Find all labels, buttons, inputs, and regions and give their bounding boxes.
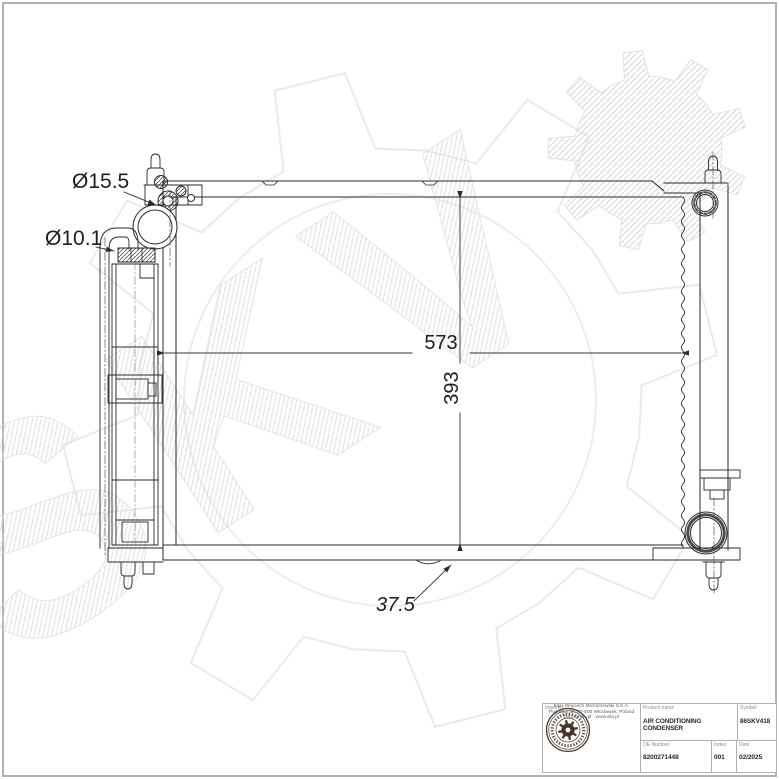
symbol-cell: Symbol 86SKV418 xyxy=(738,704,776,740)
dimension-pipe-diameter: Ø10.1 xyxy=(45,227,102,250)
bracket-clip xyxy=(700,470,740,499)
title-block: Importer E&H Wojciech Michorzewski S.K.A… xyxy=(542,703,777,773)
watermark-text: SKV xyxy=(0,58,633,722)
port-ring xyxy=(133,205,177,249)
condenser-technical-drawing: SKV xyxy=(0,0,779,779)
company-line-3: biuro@skv.pl · www.skv.pl xyxy=(549,715,634,720)
index-label: Index xyxy=(714,742,734,748)
core-fin-edge xyxy=(681,197,684,547)
date-cell: Date 02/2025 xyxy=(737,741,776,772)
product-name-cell: Product name AIR CONDITIONING CONDENSER xyxy=(641,704,738,740)
oe-number-label: OE Number xyxy=(643,742,709,748)
date-value: 02/2025 xyxy=(739,754,774,761)
date-label: Date xyxy=(739,742,774,748)
dimension-depth: 37.5 xyxy=(376,594,416,616)
symbol-label: Symbol xyxy=(740,705,774,711)
oe-number-cell: OE Number 8200271448 xyxy=(641,741,712,772)
product-name-value: AIR CONDITIONING CONDENSER xyxy=(643,718,735,732)
drawing-page: SKV xyxy=(0,0,779,779)
index-cell: Index 001 xyxy=(712,741,737,772)
index-value: 001 xyxy=(714,754,734,761)
dimension-fitting-diameter: Ø15.5 xyxy=(72,170,129,193)
pipe-section xyxy=(118,248,155,262)
mounting-pin-bottom-right xyxy=(703,562,724,590)
symbol-value: 86SKV418 xyxy=(740,718,774,725)
title-block-importer-cell: Importer E&H Wojciech Michorzewski S.K.A… xyxy=(543,704,641,772)
dimension-height: 393 xyxy=(441,371,463,404)
oe-number-value: 8200271448 xyxy=(643,754,709,761)
product-name-label: Product name xyxy=(643,705,735,711)
watermark-gear-small xyxy=(548,50,745,249)
dimension-width: 573 xyxy=(424,332,457,354)
bottom-hole-knurl xyxy=(688,515,724,551)
company-address: E&H Wojciech Michorzewski S.K.A. Pogodna… xyxy=(549,704,634,720)
